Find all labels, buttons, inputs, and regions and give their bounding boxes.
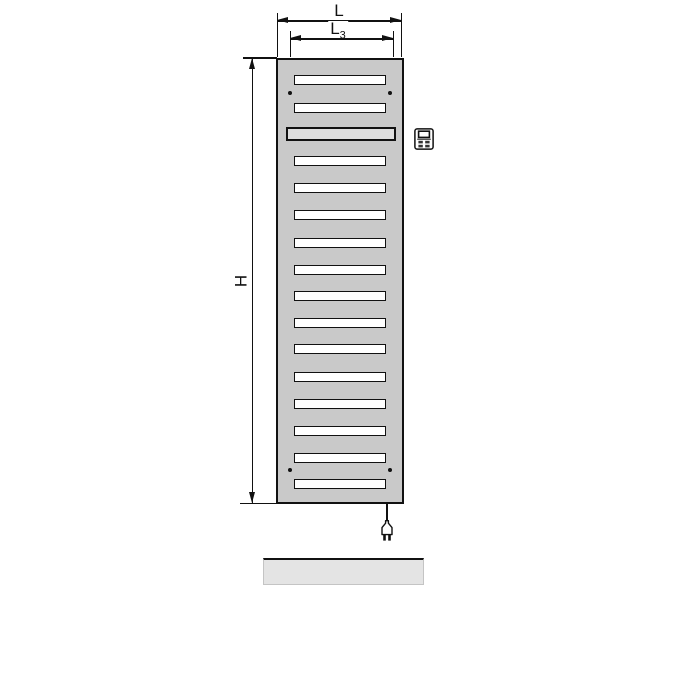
heating-element-bar [286, 127, 396, 141]
mounting-hole [388, 91, 392, 95]
radiator-slot [294, 399, 386, 409]
radiator-slats [0, 0, 700, 700]
radiator-slot [294, 372, 386, 382]
power-plug-icon [378, 520, 396, 542]
radiator-slot [294, 210, 386, 220]
mounting-hole [288, 468, 292, 472]
radiator-slot [294, 291, 386, 301]
radiator-slot [294, 426, 386, 436]
radiator-slot [294, 344, 386, 354]
radiator-slot [294, 183, 386, 193]
radiator-slot [294, 238, 386, 248]
radiator-slot [294, 479, 386, 489]
mounting-hole [388, 468, 392, 472]
mounting-hole [288, 91, 292, 95]
floor-surface [263, 558, 424, 585]
control-unit-icon [414, 128, 434, 150]
radiator-slot [294, 265, 386, 275]
radiator-slot [294, 453, 386, 463]
radiator-slot [294, 103, 386, 113]
radiator-slot [294, 75, 386, 85]
radiator-slot [294, 156, 386, 166]
diagram-canvas: L L3 H [0, 0, 700, 700]
radiator-slot [294, 318, 386, 328]
